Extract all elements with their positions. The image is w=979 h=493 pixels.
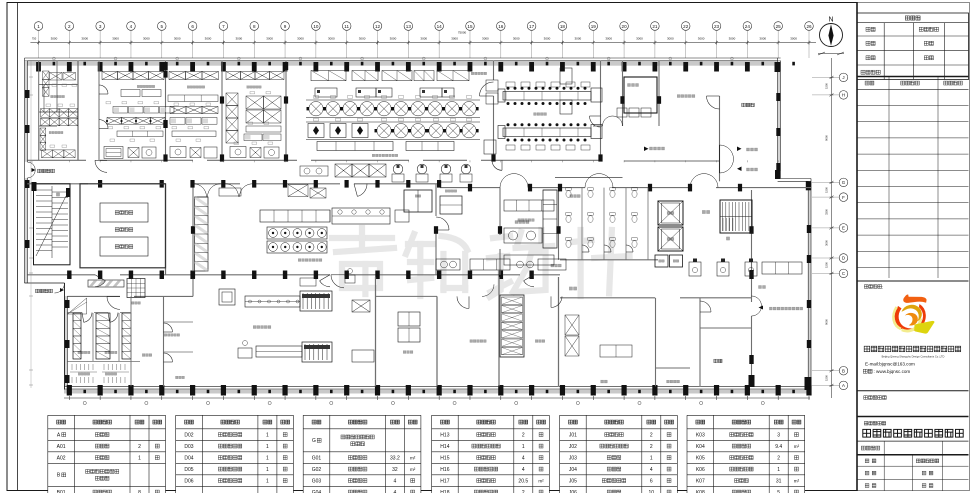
svg-text:1: 1 [777,467,780,473]
svg-text:3000: 3000 [667,37,674,41]
svg-text:K04: K04 [696,444,705,450]
svg-text:8: 8 [253,24,256,29]
svg-text:32: 32 [392,467,398,473]
svg-text:J03: J03 [569,455,577,461]
svg-text:10: 10 [313,24,319,29]
svg-text::: : [882,284,883,289]
svg-text:H: H [842,93,845,98]
svg-text:9000: 9000 [825,135,829,141]
svg-text:J02: J02 [569,444,577,450]
svg-text:D: D [842,256,845,261]
svg-text:1: 1 [37,24,40,29]
svg-text:1500: 1500 [825,187,829,193]
svg-text:3000: 3000 [143,37,150,41]
svg-text:D05: D05 [184,467,193,473]
svg-text:3000: 3000 [513,37,520,41]
svg-text:3000: 3000 [482,37,489,41]
svg-text:4: 4 [522,455,525,461]
svg-text:F: F [842,195,845,200]
svg-text:K06: K06 [696,467,705,473]
svg-text:D03: D03 [184,444,193,450]
svg-text:23: 23 [714,24,720,29]
svg-text:3: 3 [99,24,102,29]
svg-text:2: 2 [777,455,780,461]
svg-text:Beijing Qineng Shangchu Design: Beijing Qineng Shangchu Design Consultan… [882,355,945,359]
svg-text:3000: 3000 [174,37,181,41]
svg-text:m²: m² [794,444,800,449]
svg-text:3000: 3000 [544,37,551,41]
svg-text:1: 1 [266,432,269,438]
svg-text:3000: 3000 [81,37,88,41]
svg-text:3000: 3000 [605,37,612,41]
svg-text:G02: G02 [312,467,322,473]
svg-text:3000: 3000 [698,37,705,41]
svg-text:m²: m² [410,467,416,472]
svg-text:75000: 75000 [458,31,467,35]
svg-text:3300: 3300 [825,209,829,215]
svg-text:19: 19 [591,24,597,29]
svg-text:17: 17 [529,24,535,29]
svg-text:m²: m² [538,478,544,483]
svg-text:3000: 3000 [451,37,458,41]
svg-text:D04: D04 [184,455,193,461]
svg-text:4: 4 [394,478,397,484]
svg-text:750: 750 [32,37,37,41]
svg-text:1500: 1500 [825,262,829,268]
svg-text:3000: 3000 [235,37,242,41]
svg-text:11: 11 [344,24,349,29]
svg-text:9: 9 [284,24,287,29]
svg-text:K05: K05 [696,455,705,461]
svg-text:2: 2 [650,444,653,450]
svg-text:7: 7 [222,24,225,29]
svg-text:G01: G01 [312,455,322,461]
svg-text:1: 1 [650,455,653,461]
svg-text:14: 14 [437,24,443,29]
svg-text:3000: 3000 [790,37,797,41]
svg-text:m²: m² [410,455,416,460]
svg-text:J01: J01 [569,432,577,438]
svg-text:15: 15 [467,24,473,29]
svg-text:E-mail:bjqnsc@163.com: E-mail:bjqnsc@163.com [865,362,915,367]
svg-text:2: 2 [522,432,525,438]
svg-text:J: J [842,75,844,80]
svg-text:N: N [828,17,833,24]
svg-text:m²: m² [794,478,800,483]
svg-text:6: 6 [191,24,194,29]
svg-text:1: 1 [266,444,269,450]
svg-text:21: 21 [652,24,658,29]
svg-text:A: A [842,383,845,388]
svg-text:H13: H13 [440,432,449,438]
svg-text:3000: 3000 [359,37,366,41]
svg-text:H17: H17 [440,478,449,484]
svg-text:G: G [842,180,846,185]
svg-text:D02: D02 [184,432,193,438]
svg-text:H15: H15 [440,455,449,461]
svg-text:6: 6 [650,478,653,484]
svg-text:H16: H16 [440,467,449,473]
svg-text:C: C [842,271,845,276]
svg-text:B: B [842,368,845,373]
svg-text:4: 4 [650,467,653,473]
svg-text:2: 2 [68,24,71,29]
svg-text:16: 16 [498,24,504,29]
svg-text:E: E [842,226,845,231]
svg-text:1: 1 [522,444,525,450]
svg-text:26: 26 [806,24,812,29]
svg-text:3000: 3000 [636,37,643,41]
svg-text:9000: 9000 [825,319,829,325]
svg-text:20: 20 [622,24,628,29]
svg-text:A01: A01 [57,444,66,450]
svg-text:K03: K03 [696,432,705,438]
svg-text:J04: J04 [569,467,577,473]
svg-text:3000: 3000 [575,37,582,41]
svg-text:: www.bjqnsc.com: : www.bjqnsc.com [874,369,911,374]
svg-text:3000: 3000 [328,37,335,41]
svg-text:20.5: 20.5 [518,478,528,484]
svg-text:2: 2 [138,444,141,450]
svg-text:3000: 3000 [112,37,119,41]
svg-text:D06: D06 [184,478,193,484]
svg-text:3000: 3000 [297,37,304,41]
svg-text:24: 24 [745,24,751,29]
svg-text:31: 31 [776,478,782,484]
svg-text:3000: 3000 [759,37,766,41]
svg-text:12: 12 [375,24,381,29]
svg-text:3000: 3000 [420,37,427,41]
svg-text:3: 3 [777,432,780,438]
svg-text:1: 1 [266,478,269,484]
svg-text:1: 1 [266,455,269,461]
svg-text:3000: 3000 [825,240,829,246]
svg-text:K07: K07 [696,478,705,484]
svg-text:25: 25 [776,24,782,29]
svg-text:4: 4 [522,467,525,473]
svg-text:J05: J05 [569,478,577,484]
svg-text:9.4: 9.4 [775,444,782,450]
svg-text:G: G [312,438,316,444]
svg-text:3000: 3000 [205,37,212,41]
svg-text:1: 1 [266,467,269,473]
svg-text:H14: H14 [440,444,449,450]
svg-text:22: 22 [683,24,689,29]
svg-text:1: 1 [138,455,141,461]
svg-text:18: 18 [560,24,566,29]
svg-text:3000: 3000 [51,37,58,41]
svg-text:3000: 3000 [390,37,397,41]
svg-text:G03: G03 [312,478,322,484]
svg-text:3000: 3000 [266,37,273,41]
svg-text:1500: 1500 [825,375,829,381]
svg-text:13: 13 [406,24,412,29]
svg-text:5: 5 [160,24,163,29]
svg-text:4: 4 [130,24,133,29]
svg-text:2: 2 [650,432,653,438]
svg-text:A02: A02 [57,455,66,461]
svg-text:33.2: 33.2 [390,455,400,461]
svg-text:1500: 1500 [825,83,829,89]
svg-text:3000: 3000 [729,37,736,41]
